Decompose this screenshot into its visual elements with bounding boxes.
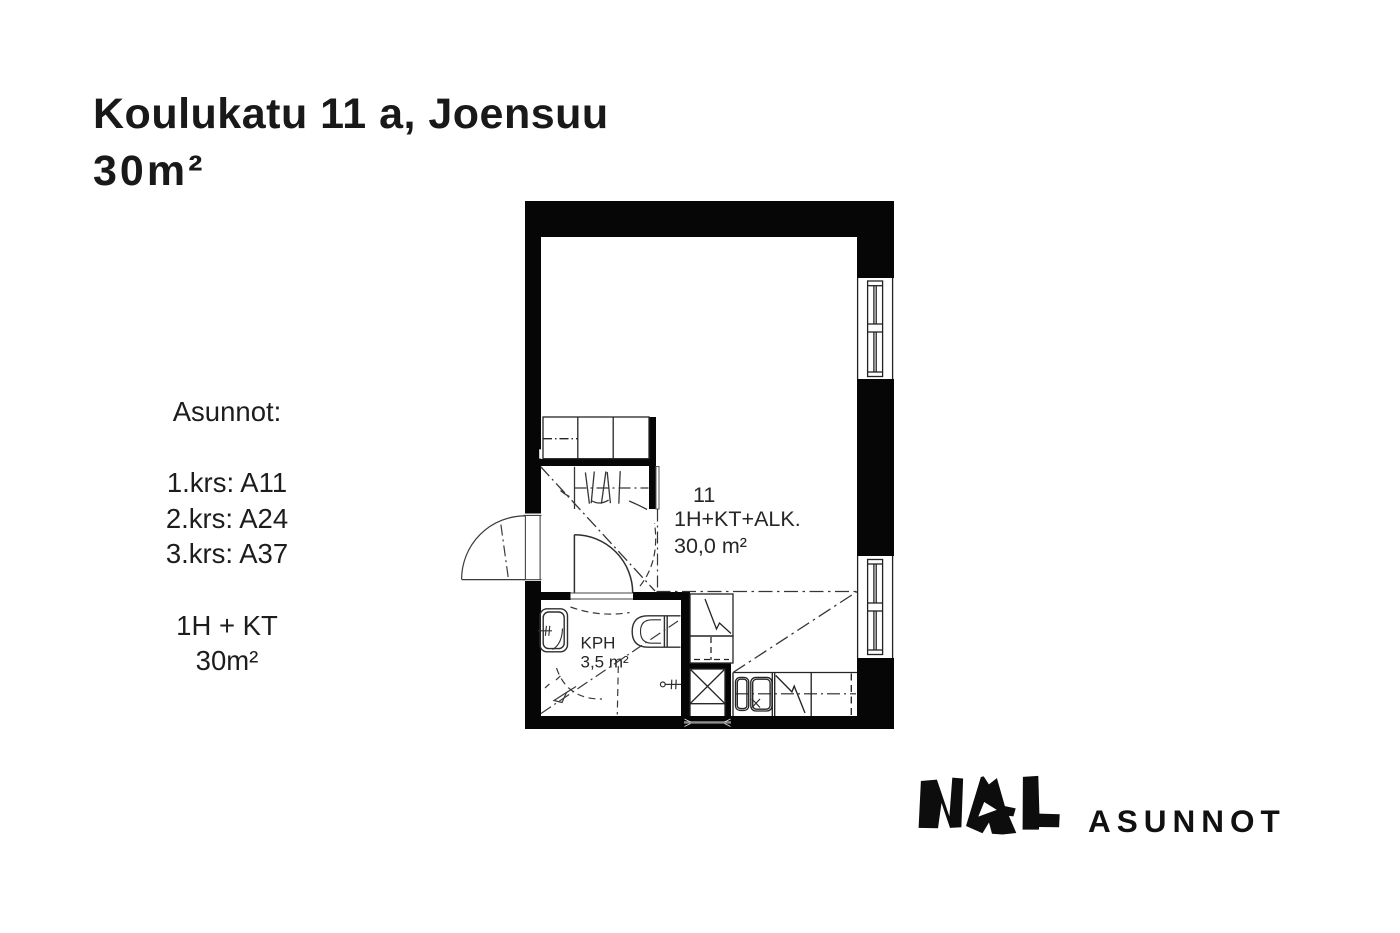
svg-text:30,0 m²: 30,0 m² <box>674 534 747 558</box>
svg-text:KPH: KPH <box>581 634 616 653</box>
svg-text:3,5 m²: 3,5 m² <box>581 653 630 672</box>
svg-text:1H+KT+ALK.: 1H+KT+ALK. <box>674 507 801 531</box>
svg-text:11: 11 <box>693 483 715 507</box>
